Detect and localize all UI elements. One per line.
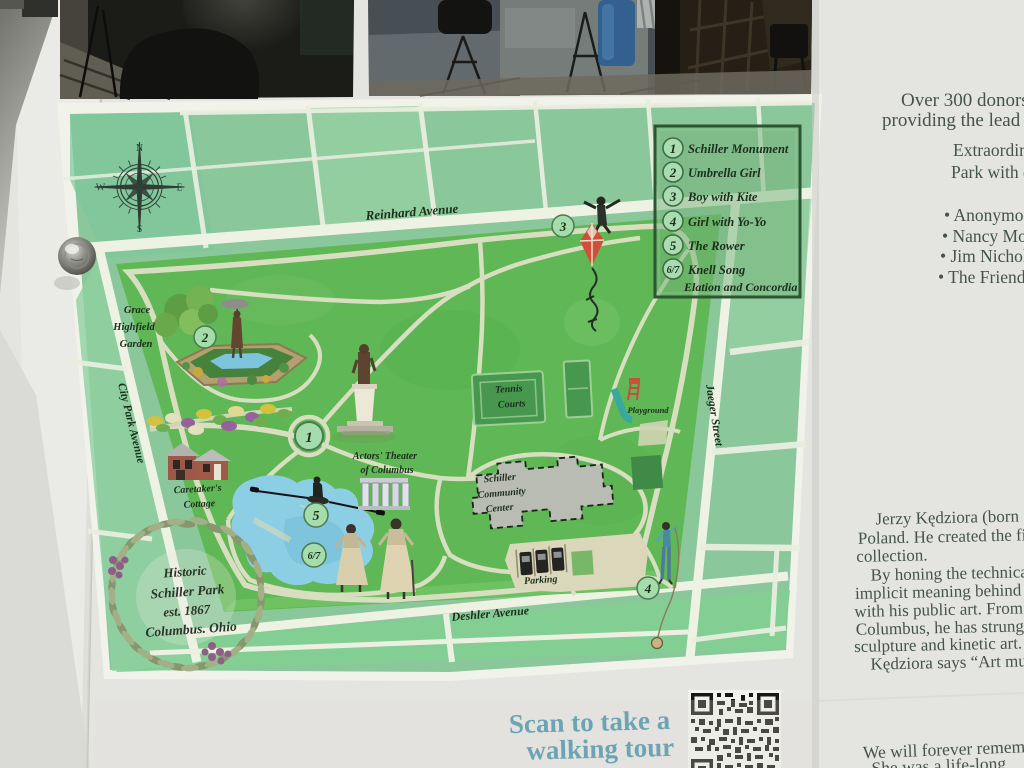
svg-text:6/7: 6/7 xyxy=(667,265,681,276)
svg-text:Over 300 donors contributed: Over 300 donors contributed xyxy=(901,90,1024,111)
svg-text:W: W xyxy=(96,183,106,194)
svg-text:4: 4 xyxy=(644,581,652,596)
svg-text:Courts: Courts xyxy=(498,398,526,410)
svg-text:Park with dedication: Park with dedication xyxy=(951,162,1024,182)
svg-text:The Rower: The Rower xyxy=(688,239,745,253)
svg-text:2: 2 xyxy=(201,330,209,345)
svg-text:Umbrella Girl: Umbrella Girl xyxy=(688,166,761,180)
svg-text:Actors' Theater: Actors' Theater xyxy=(352,451,417,462)
svg-text:4: 4 xyxy=(669,214,677,229)
svg-text:Historic: Historic xyxy=(162,562,208,580)
svg-text:providing the lead gifts and: providing the lead gifts and xyxy=(882,110,1024,131)
svg-text:Schiller Monument: Schiller Monument xyxy=(688,142,789,156)
svg-text:collection.: collection. xyxy=(856,545,928,565)
svg-text:1: 1 xyxy=(670,141,677,156)
svg-text:6/7: 6/7 xyxy=(308,551,322,562)
svg-text:Parking: Parking xyxy=(524,574,558,587)
svg-text:Poland. He created the five sc: Poland. He created the five sc xyxy=(858,525,1024,548)
svg-text:3: 3 xyxy=(559,219,567,234)
svg-text:5: 5 xyxy=(670,238,677,253)
svg-text:Playground: Playground xyxy=(627,405,669,415)
svg-text:N: N xyxy=(136,143,143,154)
svg-text:Extraordinary gifts: Extraordinary gifts xyxy=(953,140,1024,160)
svg-text:of Columbus: of Columbus xyxy=(360,465,413,476)
svg-text:Kędziora says “Art must go: Kędziora says “Art must go xyxy=(870,651,1024,674)
svg-text:• Jim Nichols and: • Jim Nichols and xyxy=(940,246,1024,266)
svg-text:• Anonymous donor: • Anonymous donor xyxy=(944,205,1024,225)
svg-text:Garden: Garden xyxy=(120,339,153,350)
svg-text:Cottage: Cottage xyxy=(183,498,216,511)
svg-text:Highfield: Highfield xyxy=(112,322,155,333)
svg-text:2: 2 xyxy=(669,165,677,180)
svg-text:E: E xyxy=(176,183,182,194)
svg-text:Knell Song: Knell Song xyxy=(687,263,745,277)
svg-text:S: S xyxy=(137,224,143,235)
svg-text:• The Friends of Schiller: • The Friends of Schiller xyxy=(938,267,1024,287)
svg-text:Boy with Kite: Boy with Kite xyxy=(687,190,758,204)
svg-text:Tennis: Tennis xyxy=(495,383,523,395)
svg-text:1: 1 xyxy=(305,430,313,446)
svg-text:Grace: Grace xyxy=(124,305,151,316)
svg-text:Girl with Yo-Yo: Girl with Yo-Yo xyxy=(688,215,766,229)
svg-text:Elation and Concordia: Elation and Concordia xyxy=(683,280,797,294)
svg-text:5: 5 xyxy=(313,509,320,524)
svg-text:• Nancy Morbitzer: • Nancy Morbitzer xyxy=(942,226,1024,246)
svg-text:3: 3 xyxy=(669,189,677,204)
